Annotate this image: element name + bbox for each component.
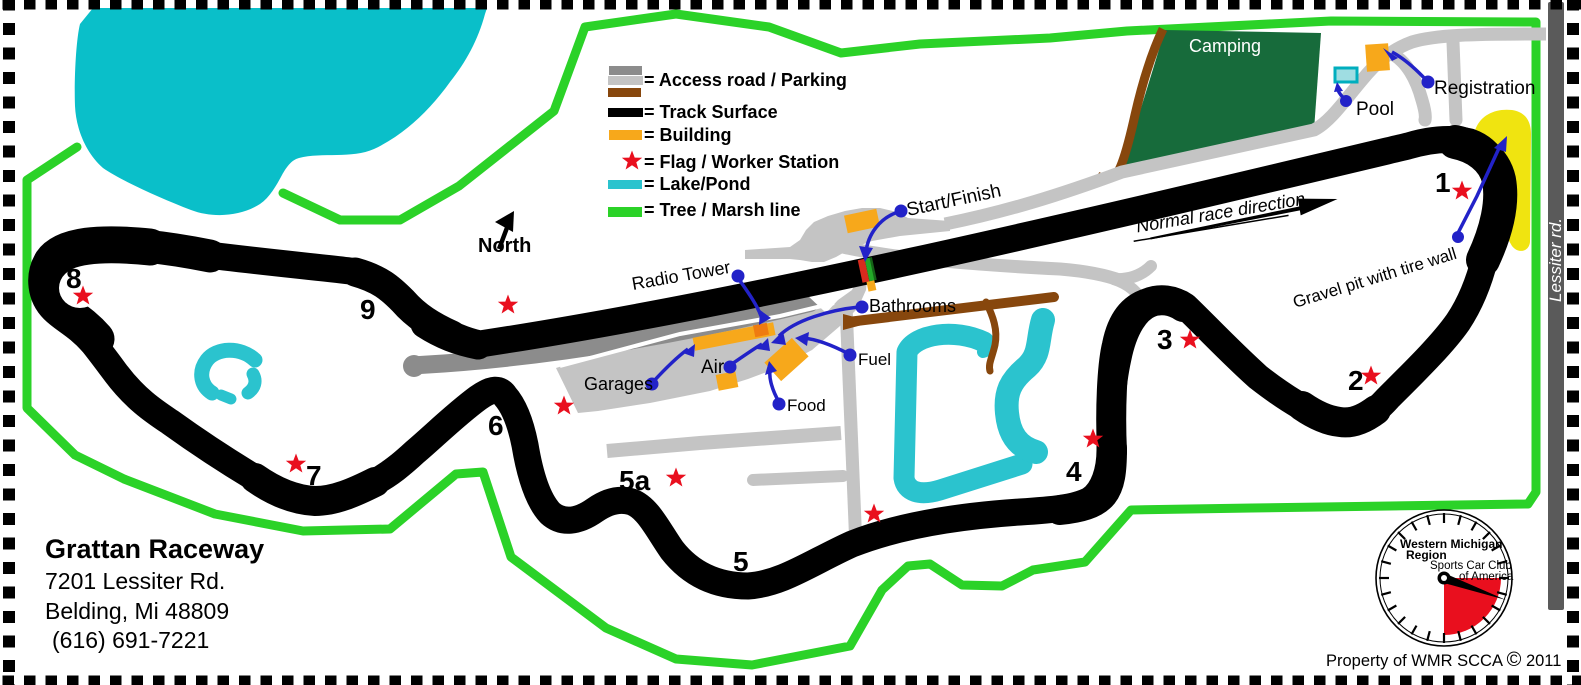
svg-text:4: 4 <box>1066 456 1082 487</box>
svg-text:Fuel: Fuel <box>858 350 891 369</box>
svg-text:= Flag / Worker Station: = Flag / Worker Station <box>644 152 839 172</box>
svg-text:= Access road / Parking: = Access road / Parking <box>644 70 847 90</box>
svg-text:Registration: Registration <box>1434 78 1535 99</box>
svg-text:8: 8 <box>66 263 82 294</box>
svg-text:= Tree / Marsh line: = Tree / Marsh line <box>644 200 801 220</box>
svg-text:7201 Lessiter Rd.: 7201 Lessiter Rd. <box>45 568 225 594</box>
svg-text:Pool: Pool <box>1356 99 1394 120</box>
svg-text:Lessiter rd.: Lessiter rd. <box>1546 218 1565 302</box>
svg-text:Grattan Raceway: Grattan Raceway <box>45 534 264 564</box>
svg-text:3: 3 <box>1157 324 1173 355</box>
svg-text:Food: Food <box>787 396 826 415</box>
svg-text:= Lake/Pond: = Lake/Pond <box>644 174 751 194</box>
svg-text:5: 5 <box>733 546 749 577</box>
svg-text:Property of WMR SCCA © 2011: Property of WMR SCCA © 2011 <box>1326 649 1561 671</box>
svg-text:Garages: Garages <box>584 374 653 394</box>
svg-text:Bathrooms: Bathrooms <box>869 296 956 316</box>
svg-text:(616) 691-7221: (616) 691-7221 <box>52 627 209 653</box>
svg-text:7: 7 <box>306 460 322 491</box>
svg-text:5a: 5a <box>619 465 651 496</box>
svg-text:2: 2 <box>1348 365 1364 396</box>
svg-text:North: North <box>478 235 531 257</box>
svg-text:= Building: = Building <box>644 125 732 145</box>
svg-text:= Track Surface: = Track Surface <box>644 102 778 122</box>
svg-text:6: 6 <box>488 410 504 441</box>
svg-text:Camping: Camping <box>1189 36 1261 56</box>
svg-text:1: 1 <box>1435 167 1451 198</box>
svg-text:Belding, Mi 48809: Belding, Mi 48809 <box>45 598 229 624</box>
svg-text:of America: of America <box>1459 571 1514 583</box>
svg-text:Air: Air <box>701 357 725 378</box>
svg-text:9: 9 <box>360 294 376 325</box>
